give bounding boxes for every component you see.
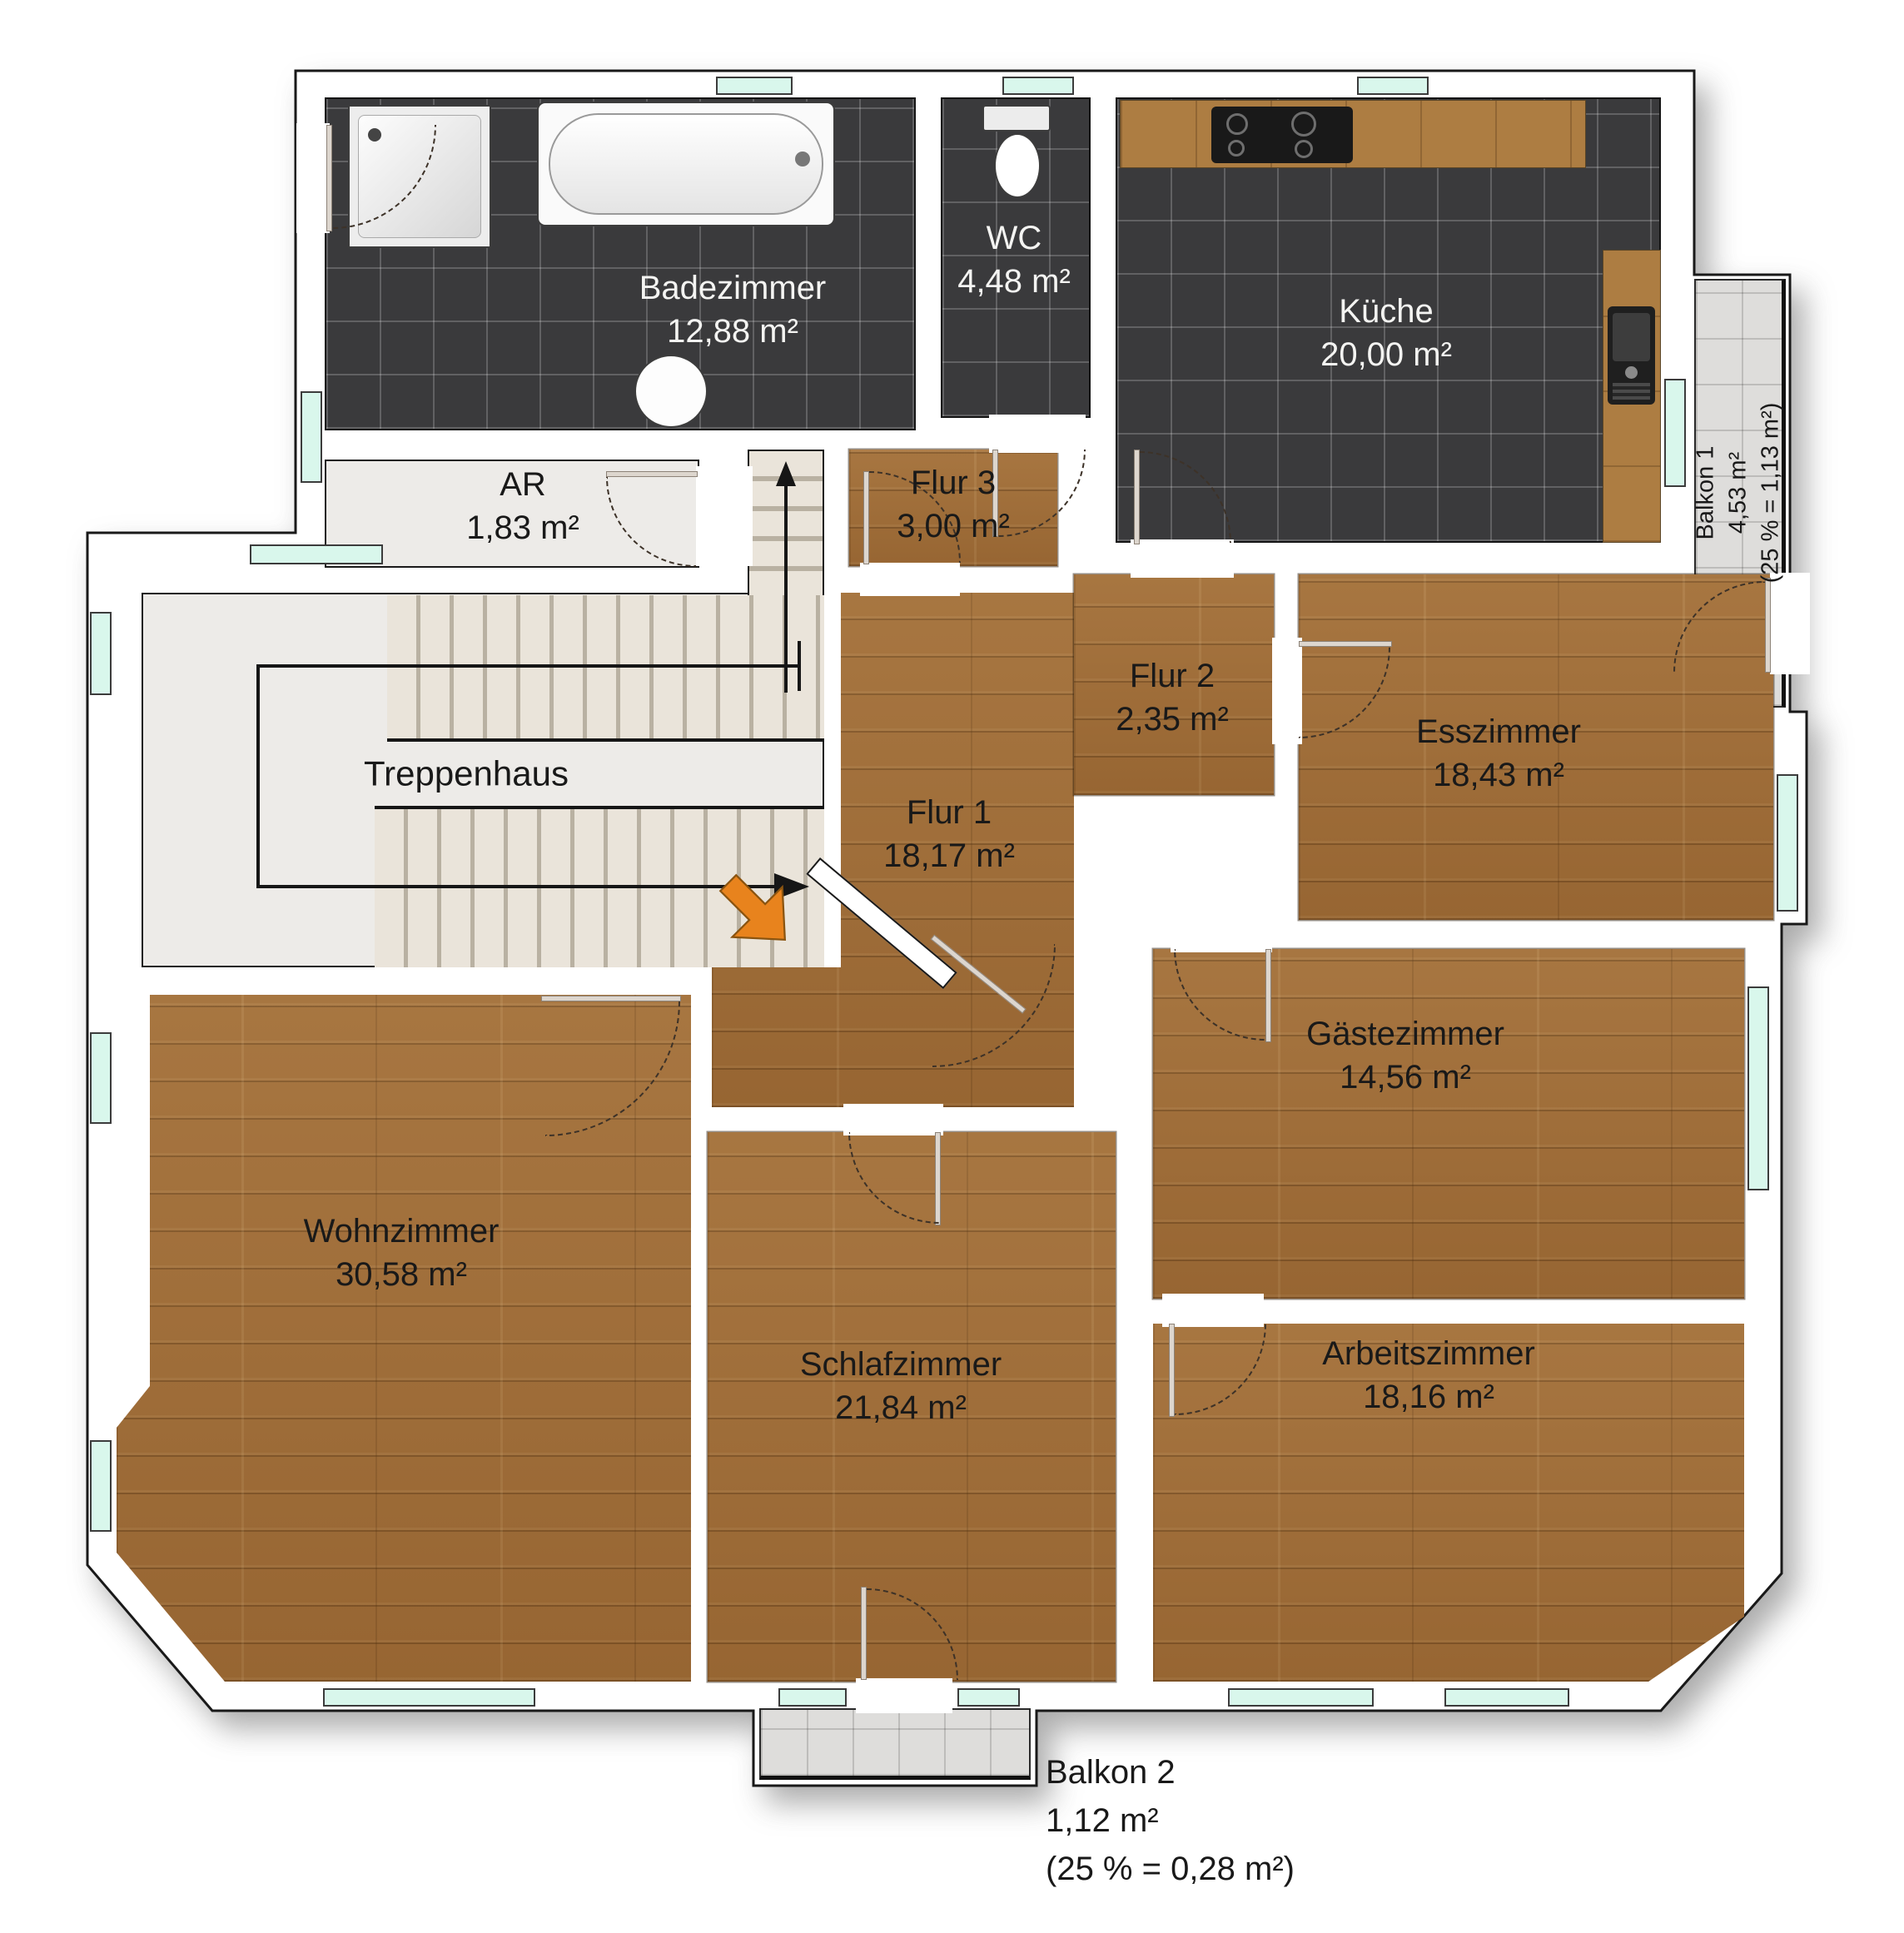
- abstellraum-label: AR 1,83 m²: [466, 463, 579, 549]
- room-name: Flur 1: [883, 791, 1015, 834]
- window: [250, 544, 383, 564]
- badezimmer-label: Badezimmer 12,88 m²: [639, 266, 827, 353]
- bathroom-sink: [634, 355, 708, 428]
- room-name: Treppenhaus: [364, 752, 569, 798]
- door-leaf: [935, 1132, 941, 1225]
- shower-drain-icon: [368, 128, 381, 142]
- door-gap: [1272, 638, 1302, 744]
- room-name: Balkon 1: [1689, 403, 1722, 584]
- gaestezimmer-label: Gästezimmer 14,56 m²: [1306, 1012, 1504, 1099]
- window: [957, 1688, 1020, 1707]
- balkon2-floor: [759, 1708, 1031, 1780]
- room-name: Schlafzimmer: [800, 1343, 1002, 1386]
- treppenhaus-label: Treppenhaus: [364, 752, 569, 798]
- door-gap: [1131, 539, 1234, 578]
- window: [90, 1440, 112, 1532]
- door-gap: [860, 563, 960, 596]
- door-gap: [856, 1678, 952, 1713]
- balkon1-label: Balkon 1 4,53 m² (25 % = 1,13 m²): [1689, 403, 1787, 584]
- room-name: Küche: [1320, 290, 1452, 333]
- window: [323, 1688, 535, 1707]
- room-area: 18,43 m²: [1416, 753, 1581, 797]
- room-area: 3,00 m²: [897, 504, 1010, 548]
- door-leaf: [861, 1587, 867, 1680]
- arbeitszimmer-label: Arbeitszimmer 18,16 m²: [1322, 1332, 1535, 1419]
- esszimmer-label: Esszimmer 18,43 m²: [1416, 710, 1581, 797]
- sink-drainboard: [1613, 383, 1650, 400]
- room-name: Esszimmer: [1416, 710, 1581, 753]
- balkon2-label: Balkon 2 1,12 m² (25 % = 0,28 m²): [1046, 1748, 1295, 1893]
- window: [1228, 1688, 1374, 1707]
- room-area: 18,17 m²: [883, 834, 1015, 877]
- burner-icon: [1291, 112, 1316, 137]
- room-name: Flur 3: [897, 461, 1010, 504]
- burner-icon: [1228, 140, 1245, 157]
- room-area: 21,84 m²: [800, 1386, 1002, 1429]
- wohnzimmer-floor: [117, 995, 691, 1682]
- flur3-label: Flur 3 3,00 m²: [897, 461, 1010, 548]
- door-gap: [1162, 1294, 1264, 1327]
- room-name: Arbeitszimmer: [1322, 1332, 1535, 1375]
- door-leaf: [541, 996, 681, 1001]
- room-note: (25 % = 0,28 m²): [1046, 1845, 1295, 1893]
- room-area: 4,48 m²: [957, 260, 1071, 303]
- bathtub-faucet-icon: [795, 152, 810, 166]
- door-gap: [1770, 573, 1810, 674]
- room-name: AR: [466, 463, 579, 506]
- room-name: Balkon 2: [1046, 1748, 1295, 1796]
- sink-faucet-icon: [1625, 366, 1638, 379]
- toilet-bowl: [994, 133, 1041, 198]
- window: [1357, 77, 1429, 95]
- room-area: 1,83 m²: [466, 506, 579, 549]
- window: [716, 77, 793, 95]
- window: [1002, 77, 1074, 95]
- kueche-label: Küche 20,00 m²: [1320, 290, 1452, 376]
- sink-basin: [1613, 313, 1650, 361]
- room-name: WC: [957, 216, 1071, 260]
- gaestezimmer-floor: [1153, 949, 1744, 1299]
- door-gap: [696, 466, 753, 566]
- winder-direction-arrow: [748, 450, 824, 714]
- door-leaf: [326, 125, 332, 231]
- wc-label: WC 4,48 m²: [957, 216, 1071, 303]
- room-note: (25 % = 1,13 m²): [1755, 403, 1787, 584]
- door-leaf: [1265, 949, 1271, 1042]
- room-name: Gästezimmer: [1306, 1012, 1504, 1056]
- flur2-label: Flur 2 2,35 m²: [1116, 654, 1229, 741]
- room-area: 30,58 m²: [304, 1253, 500, 1296]
- door-leaf: [863, 471, 869, 564]
- door-leaf: [1169, 1324, 1175, 1417]
- room-name: Badezimmer: [639, 266, 827, 310]
- door-gap: [296, 123, 330, 233]
- room-area: 2,35 m²: [1116, 698, 1229, 741]
- room-area: 18,16 m²: [1322, 1375, 1535, 1419]
- window: [1747, 986, 1769, 1190]
- kitchen-sink: [1608, 306, 1655, 405]
- shower-tray: [348, 105, 491, 248]
- room-area: 12,88 m²: [639, 310, 827, 353]
- door-leaf: [1765, 578, 1771, 673]
- burner-icon: [1226, 113, 1248, 135]
- room-area: 1,12 m²: [1046, 1796, 1295, 1845]
- burner-icon: [1295, 140, 1313, 158]
- wohnzimmer-label: Wohnzimmer 30,58 m²: [304, 1210, 500, 1296]
- room-name: Wohnzimmer: [304, 1210, 500, 1253]
- door-leaf: [606, 471, 698, 477]
- toilet-tank: [982, 105, 1051, 132]
- room-area: 20,00 m²: [1320, 333, 1452, 376]
- door-gap: [989, 415, 1086, 453]
- stove: [1211, 107, 1353, 163]
- flur1-label: Flur 1 18,17 m²: [883, 791, 1015, 877]
- window: [90, 1032, 112, 1124]
- door-leaf: [1134, 450, 1140, 544]
- window: [1444, 1688, 1569, 1707]
- window: [301, 391, 322, 483]
- room-area: 14,56 m²: [1306, 1056, 1504, 1099]
- window: [1777, 774, 1798, 912]
- entrance-arrow-icon: [709, 864, 803, 957]
- door-leaf: [1299, 641, 1392, 647]
- window: [90, 612, 112, 695]
- floor-plan: Badezimmer 12,88 m² WC 4,48 m² Küche 20,…: [0, 0, 1904, 1933]
- bathtub-inner: [549, 113, 823, 215]
- kitchen-counter-top: [1120, 100, 1586, 168]
- window: [1664, 379, 1686, 487]
- door-gap: [843, 1104, 943, 1135]
- room-area: 4,53 m²: [1722, 403, 1754, 584]
- door-gap: [1171, 917, 1272, 952]
- window: [778, 1688, 847, 1707]
- bathtub: [537, 102, 835, 226]
- room-name: Flur 2: [1116, 654, 1229, 698]
- schlafzimmer-label: Schlafzimmer 21,84 m²: [800, 1343, 1002, 1429]
